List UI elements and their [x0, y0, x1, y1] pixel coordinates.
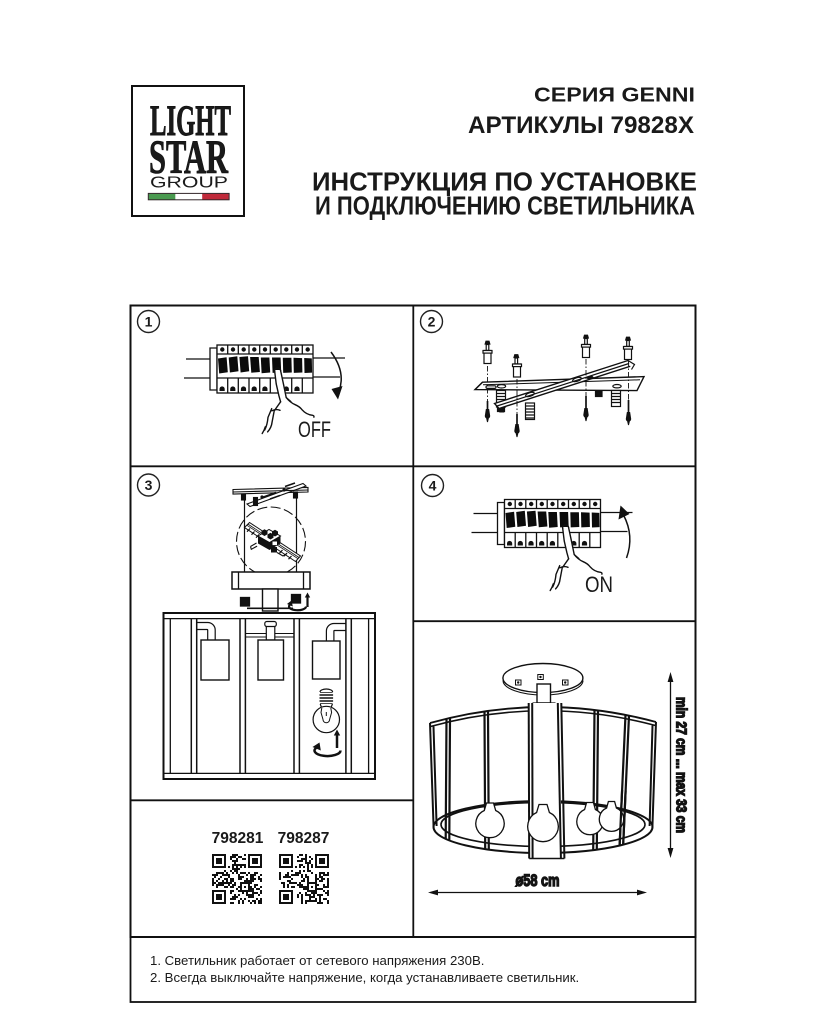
svg-text:ON: ON: [585, 572, 613, 597]
svg-text:min 27 cm ... max 33 cm: min 27 cm ... max 33 cm: [673, 697, 689, 833]
svg-text:GROUP: GROUP: [150, 175, 228, 192]
svg-text:АРТИКУЛЫ 79828X: АРТИКУЛЫ 79828X: [468, 112, 695, 139]
svg-text:И ПОДКЛЮЧЕНИЮ СВЕТИЛЬНИКА: И ПОДКЛЮЧЕНИЮ СВЕТИЛЬНИКА: [315, 191, 695, 221]
svg-text:4: 4: [429, 478, 437, 494]
svg-text:2. Всегда выключайте напряжени: 2. Всегда выключайте напряжение, когда у…: [150, 970, 579, 985]
svg-text:1: 1: [145, 314, 153, 330]
svg-text:СЕРИЯ GENNI: СЕРИЯ GENNI: [534, 85, 695, 107]
svg-text:1. Светильник работает от сете: 1. Светильник работает от сетевого напря…: [150, 953, 484, 968]
svg-text:798287: 798287: [278, 830, 330, 847]
svg-text:OFF: OFF: [298, 417, 331, 442]
svg-text:3: 3: [145, 477, 153, 493]
svg-text:ø58 cm: ø58 cm: [516, 872, 560, 890]
svg-text:2: 2: [428, 314, 436, 330]
svg-text:798281: 798281: [212, 830, 264, 847]
